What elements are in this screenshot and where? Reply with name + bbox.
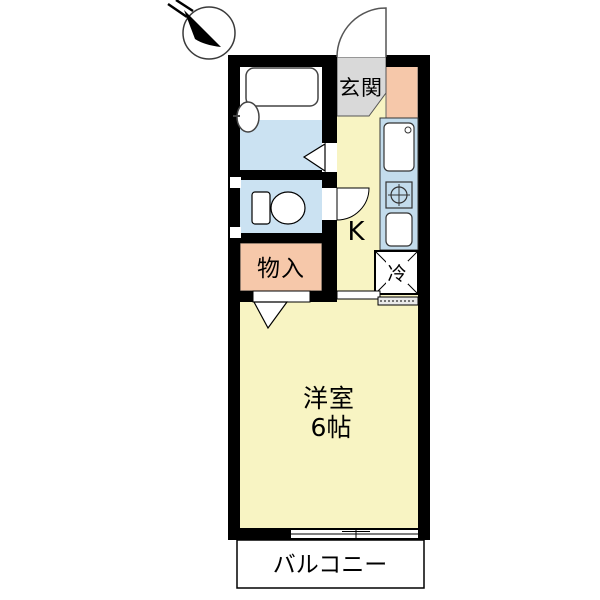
- entrance-label: 玄関: [339, 76, 383, 100]
- kitchen-label: K: [347, 217, 365, 247]
- wall-middle-upper: [322, 55, 337, 144]
- wall-block-lower: [230, 227, 241, 238]
- storage-door-opening: [253, 291, 310, 302]
- toilet-tank-icon: [252, 192, 270, 224]
- bathtub-icon: [246, 68, 318, 106]
- wall-middle-mid: [322, 171, 337, 188]
- floor-plan-drawing: 玄関 K 冷 物入 洋室 6帖 バルコニー: [0, 0, 600, 600]
- kitchen-unit: [380, 118, 418, 250]
- north-arrow-icon: [168, 0, 235, 59]
- toilet-door-opening: [322, 188, 337, 220]
- wall-storage-bottom-right: [310, 291, 337, 302]
- refrigerator-label: 冷: [387, 263, 406, 285]
- sliding-door-panel-left: [337, 291, 380, 299]
- western-room-size-label: 6帖: [311, 413, 352, 442]
- balcony-window: [291, 528, 418, 540]
- faucet-icon: [237, 102, 259, 132]
- wall-block-upper: [230, 177, 241, 188]
- balcony-label: バルコニー: [273, 552, 388, 578]
- storage-label: 物入: [257, 256, 305, 282]
- wall-top-left: [228, 55, 337, 67]
- floor-plan-canvas: 玄関 K 冷 物入 洋室 6帖 バルコニー: [0, 0, 600, 600]
- entrance-door: [337, 8, 386, 57]
- wall-right: [418, 55, 430, 540]
- wall-bath-toilet: [240, 170, 322, 180]
- wall-middle-lower: [322, 220, 337, 302]
- entrance-door-swing-icon: [337, 8, 386, 57]
- western-room-label: 洋室: [303, 384, 355, 413]
- wall-bottom-left: [228, 528, 291, 540]
- wall-toilet-storage: [240, 233, 322, 243]
- counter-top-icon: [386, 213, 412, 246]
- wall-storage-bottom-left: [228, 291, 253, 302]
- faucet-dot-icon: [405, 127, 411, 133]
- toilet-bowl-icon: [271, 192, 305, 224]
